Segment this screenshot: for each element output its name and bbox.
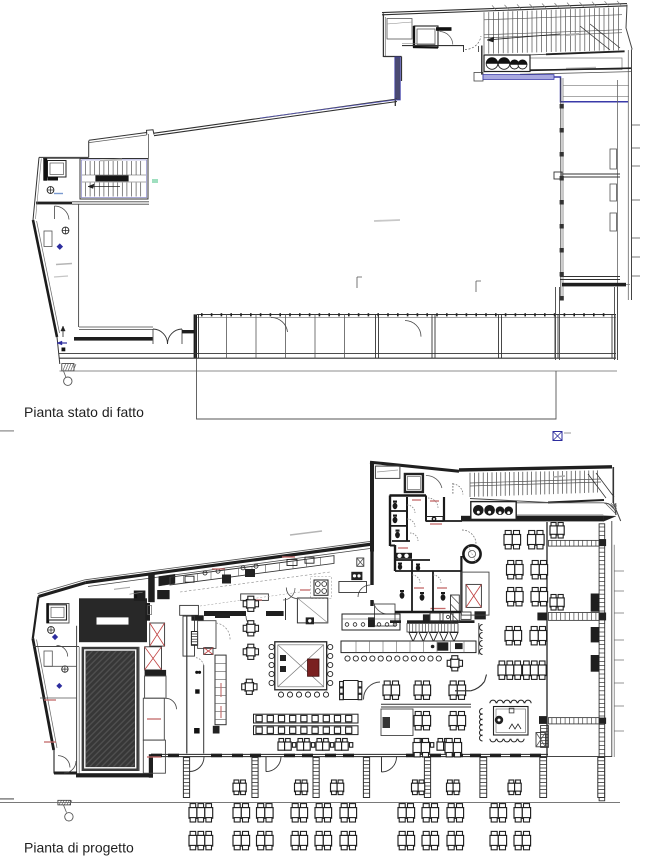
svg-text:Pianta di progetto: Pianta di progetto xyxy=(24,840,134,856)
svg-text:Pianta stato di fatto: Pianta stato di fatto xyxy=(24,404,144,420)
